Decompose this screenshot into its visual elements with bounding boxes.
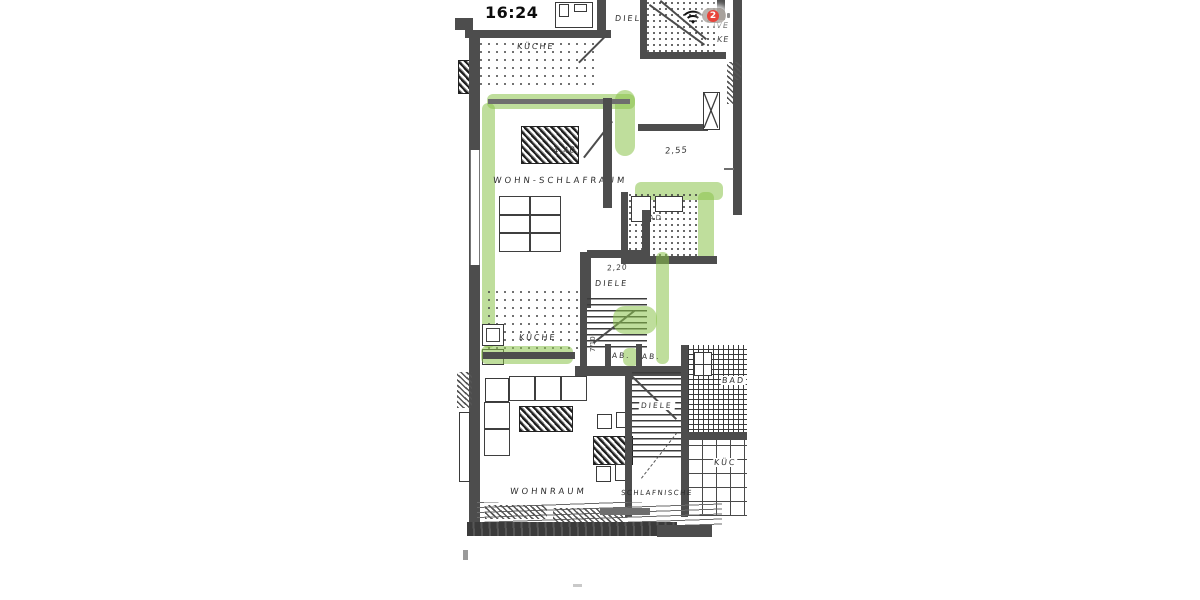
- chimney-column: [703, 92, 720, 130]
- wall: [580, 252, 587, 370]
- sofa-corner: [485, 378, 509, 402]
- outer-wall-bottom: [467, 522, 677, 536]
- room-label-schlafnische: SCHLAFNISCHE: [621, 489, 693, 497]
- room-label-wohnraum: WOHNRAUM: [510, 487, 588, 497]
- wc-fixture: [574, 4, 587, 12]
- room-label-ab1: AB.: [612, 351, 631, 360]
- room-label-bad-lower: BAD: [721, 376, 747, 385]
- door-tick: [724, 168, 734, 170]
- wifi-icon: [683, 10, 703, 26]
- page-mark: [573, 584, 582, 587]
- room-label-ab2: AB.: [642, 352, 661, 361]
- room-label-kueche-main: KÜCHE: [519, 333, 557, 342]
- floor-plan-screenshot: KÜCHE DIELE IVE KE 4,40 WOHN-SCHLAFRAUM …: [455, 0, 747, 600]
- appliance: [482, 324, 504, 346]
- dimension: 2,20: [607, 262, 628, 272]
- highlight-stairs-blob: [613, 306, 657, 334]
- bath-fixture: [655, 196, 683, 212]
- wall: [455, 18, 473, 30]
- wall: [640, 0, 647, 58]
- window-lower-left: [459, 412, 470, 482]
- wall: [587, 250, 649, 258]
- sofa-left-column: [484, 402, 510, 456]
- chair: [596, 466, 611, 482]
- wall: [465, 30, 611, 38]
- wall: [483, 352, 575, 359]
- stair-note: 7/10: [589, 336, 597, 352]
- wall: [642, 210, 650, 262]
- dimension: 2,55: [665, 145, 688, 156]
- page-mark: [463, 550, 468, 560]
- room-label-kueche-lower: KÜC: [713, 458, 738, 467]
- window-left: [470, 150, 480, 265]
- highlight-bad-right: [698, 192, 714, 264]
- outer-wall-left: [469, 35, 480, 535]
- wc-fixture: [559, 4, 569, 17]
- room-label-kueche-upper: KÜCHE: [517, 42, 555, 51]
- bath-window: [694, 352, 712, 376]
- planting-sketch: [457, 372, 472, 408]
- wall: [597, 0, 606, 38]
- wall: [640, 52, 726, 59]
- wall: [600, 508, 650, 515]
- sofa-top-row: [509, 376, 587, 401]
- battery-indicator: 2: [702, 8, 726, 23]
- room-label-diele-main: DIELE: [595, 279, 629, 288]
- coffee-table: [519, 406, 573, 432]
- wall: [603, 98, 612, 208]
- highlight-diele-wall: [656, 252, 669, 364]
- outer-wall-right: [733, 80, 742, 215]
- wall: [681, 432, 747, 440]
- wardrobe: [499, 196, 561, 252]
- margin-note: KE: [716, 35, 730, 44]
- outer-wall-bottom-right: [657, 525, 712, 537]
- room-label-diele-lower: DIELE: [639, 401, 675, 410]
- terrace-stones: [485, 505, 547, 519]
- status-bar-time: 16:24: [485, 3, 538, 22]
- wall: [638, 124, 708, 131]
- x-mark-icon: [704, 93, 718, 128]
- chair: [597, 414, 612, 429]
- battery-badge: 2: [707, 10, 719, 22]
- dimension: 4,40: [553, 145, 576, 156]
